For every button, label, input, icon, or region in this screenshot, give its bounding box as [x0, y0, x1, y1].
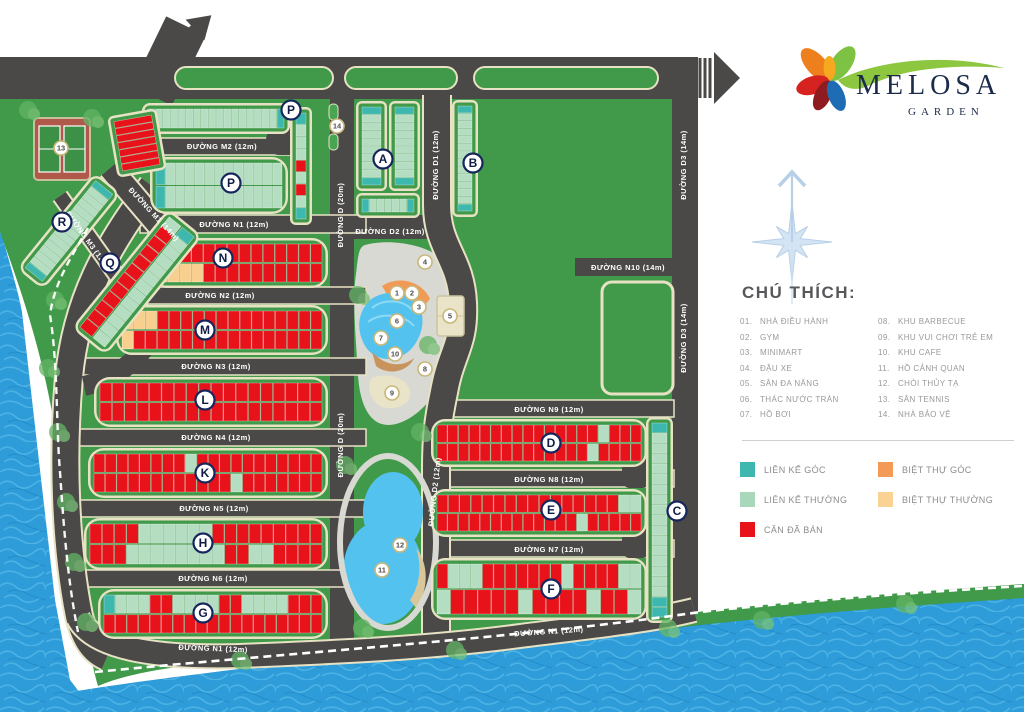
block-label-D: D — [542, 434, 561, 453]
road-label: ĐƯỜNG M2 (12m) — [187, 142, 257, 151]
block-label-F: F — [542, 580, 561, 599]
road-label: ĐƯỜNG N2 (12m) — [185, 291, 254, 300]
road-label: ĐƯỜNG N9 (12m) — [514, 405, 583, 414]
legend-column-left: 01.NHÀ ĐIỀU HÀNH02.GYM03.MINIMART04.ĐẬU … — [740, 317, 878, 426]
amenity-marker-5: 5 — [443, 309, 457, 323]
svg-text:5: 5 — [448, 312, 452, 321]
legend-swatch-row: BIỆT THỰ GÓC — [878, 455, 1016, 485]
road-label: ĐƯỜNG D2 (12m) — [355, 227, 424, 236]
legend-item: 03.MINIMART — [740, 348, 878, 357]
logo-subtitle: GARDEN — [908, 106, 984, 118]
road-label: ĐƯỜNG N5 (12m) — [179, 504, 248, 513]
legend-item: 07.HỒ BƠI — [740, 410, 878, 419]
legend-item: 08.KHU BARBECUE — [878, 317, 1016, 326]
amenity-marker-4: 4 — [418, 255, 432, 269]
svg-text:P: P — [227, 176, 235, 190]
legend-swatch-row: BIỆT THỰ THƯỜNG — [878, 485, 1016, 515]
legend-item: 05.SÂN ĐA NĂNG — [740, 379, 878, 388]
masterplan-canvas: { "logo": {"name": "MELOSA", "subtitle":… — [0, 0, 1024, 712]
road-label: ĐƯỜNG N6 (12m) — [178, 574, 247, 583]
amenity-marker-12: 12 — [393, 538, 407, 552]
svg-text:12: 12 — [396, 541, 404, 550]
svg-text:F: F — [547, 582, 554, 596]
legend-item: 06.THÁC NƯỚC TRÀN — [740, 395, 878, 404]
legend-item: 13.SÂN TENNIS — [878, 395, 1016, 404]
svg-text:G: G — [198, 606, 207, 620]
swatch-color — [878, 462, 893, 477]
block-label-L: L — [196, 391, 215, 410]
legend-item: 14.NHÀ BẢO VỆ — [878, 410, 1016, 419]
block-label-R: R — [53, 213, 72, 232]
block-label-B: B — [464, 154, 483, 173]
block-strip-a1 — [356, 101, 387, 191]
svg-text:11: 11 — [378, 566, 386, 575]
amenity-marker-1: 1 — [390, 286, 404, 300]
road-label: ĐƯỜNG N8 (12m) — [514, 475, 583, 484]
swatch-color — [740, 522, 755, 537]
svg-text:K: K — [201, 466, 210, 480]
road-label: ĐƯỜNG D1 (12m) — [431, 130, 440, 199]
svg-text:D: D — [547, 436, 556, 450]
svg-text:8: 8 — [423, 365, 427, 374]
block-label-P: P — [282, 101, 301, 120]
amenity-marker-10: 10 — [388, 347, 402, 361]
svg-text:R: R — [58, 215, 67, 229]
block-label-N: N — [214, 249, 233, 268]
road-label: ĐƯỜNG D (20m) — [336, 183, 345, 248]
block-label-A: A — [374, 150, 393, 169]
block-strip-p-main — [150, 157, 288, 214]
block-label-E: E — [542, 501, 561, 520]
road-label: ĐƯỜNG D3 (14m) — [679, 130, 688, 199]
legend-swatches: LIÊN KẾ GÓCLIÊN KẾ THƯỜNGCĂN ĐÃ BÁNBIỆT … — [740, 455, 1016, 545]
block-strip-c — [646, 417, 673, 623]
legend-separator — [742, 440, 1014, 441]
legend-item: 01.NHÀ ĐIỀU HÀNH — [740, 317, 878, 326]
svg-text:1: 1 — [395, 289, 399, 298]
swatch-color — [740, 462, 755, 477]
svg-text:13: 13 — [57, 144, 65, 153]
road-label: ĐƯỜNG N1 (12m) — [199, 220, 268, 229]
block-strip-d — [431, 419, 647, 467]
block-strip-m1-block — [107, 108, 167, 178]
svg-text:A: A — [379, 152, 388, 166]
road-medians — [175, 67, 658, 89]
legend-column-right: 08.KHU BARBECUE09.KHU VUI CHƠI TRẺ EM10.… — [878, 317, 1016, 426]
svg-text:2: 2 — [410, 289, 414, 298]
svg-text:14: 14 — [333, 122, 342, 131]
road-label: ĐƯỜNG D (20m) — [336, 413, 345, 478]
legend-swatch-row: LIÊN KẾ THƯỜNG — [740, 485, 878, 515]
road-label: ĐƯỜNG D3 (14m) — [679, 303, 688, 372]
swatch-color — [740, 492, 755, 507]
block-label-G: G — [194, 604, 213, 623]
svg-text:E: E — [547, 503, 555, 517]
svg-text:Q: Q — [105, 256, 114, 270]
amenity-marker-6: 6 — [390, 314, 404, 328]
amenity-marker-8: 8 — [418, 362, 432, 376]
block-label-P: P — [222, 174, 241, 193]
legend-title: CHÚ THÍCH: — [742, 283, 1016, 303]
svg-text:B: B — [469, 156, 478, 170]
amenity-marker-13: 13 — [54, 141, 68, 155]
block-strip-p-col — [290, 107, 312, 225]
legend-item: 09.KHU VUI CHƠI TRẺ EM — [878, 333, 1016, 342]
legend-item: 04.ĐẬU XE — [740, 364, 878, 373]
legend-item: 02.GYM — [740, 333, 878, 342]
block-strip-e — [431, 489, 647, 537]
legend-swatch-row: CĂN ĐÃ BÁN — [740, 515, 878, 545]
svg-text:M: M — [200, 323, 210, 337]
svg-text:6: 6 — [395, 317, 399, 326]
swatch-color — [878, 492, 893, 507]
amenity-marker-3: 3 — [412, 300, 426, 314]
block-strip-m — [116, 305, 328, 355]
svg-text:3: 3 — [417, 303, 421, 312]
block-label-M: M — [196, 321, 215, 340]
block-label-Q: Q — [101, 254, 120, 273]
amenity-marker-9: 9 — [385, 386, 399, 400]
logo-name: MELOSA — [856, 70, 1001, 102]
legend-item: 12.CHÒI THỦY TẠ — [878, 379, 1016, 388]
melosa-garden-logo: MELOSA GARDEN — [772, 28, 1012, 128]
exit-arrow — [700, 52, 740, 104]
svg-text:H: H — [199, 536, 208, 550]
svg-text:C: C — [673, 504, 682, 518]
future-phase-block — [602, 282, 673, 394]
svg-text:9: 9 — [390, 389, 394, 398]
block-label-H: H — [194, 534, 213, 553]
block-strip-a3 — [356, 193, 420, 218]
legend-swatch-row: LIÊN KẾ GÓC — [740, 455, 878, 485]
road-label: ĐƯỜNG N7 (12m) — [514, 545, 583, 554]
amenity-marker-2: 2 — [405, 286, 419, 300]
svg-text:L: L — [201, 393, 208, 407]
block-label-K: K — [196, 464, 215, 483]
svg-text:P: P — [287, 103, 295, 117]
amenity-marker-14: 14 — [330, 119, 344, 133]
road-label: ĐƯỜNG N10 (14m) — [591, 263, 665, 272]
svg-text:N: N — [219, 251, 228, 265]
road-label: ĐƯỜNG N3 (12m) — [181, 362, 250, 371]
amenity-marker-7: 7 — [374, 331, 388, 345]
block-strip-p-top — [142, 103, 290, 134]
road-label: ĐƯỜNG N4 (12m) — [181, 433, 250, 442]
svg-text:7: 7 — [379, 334, 383, 343]
svg-text:10: 10 — [391, 350, 399, 359]
legend-item: 10.KHU CAFE — [878, 348, 1016, 357]
block-label-C: C — [668, 502, 687, 521]
legend-panel: CHÚ THÍCH: 01.NHÀ ĐIỀU HÀNH02.GYM03.MINI… — [740, 283, 1016, 545]
amenity-marker-11: 11 — [375, 563, 389, 577]
legend-item: 11.HỒ CẢNH QUAN — [878, 364, 1016, 373]
block-strip-f — [431, 558, 647, 620]
block-strip-a2 — [389, 101, 420, 191]
